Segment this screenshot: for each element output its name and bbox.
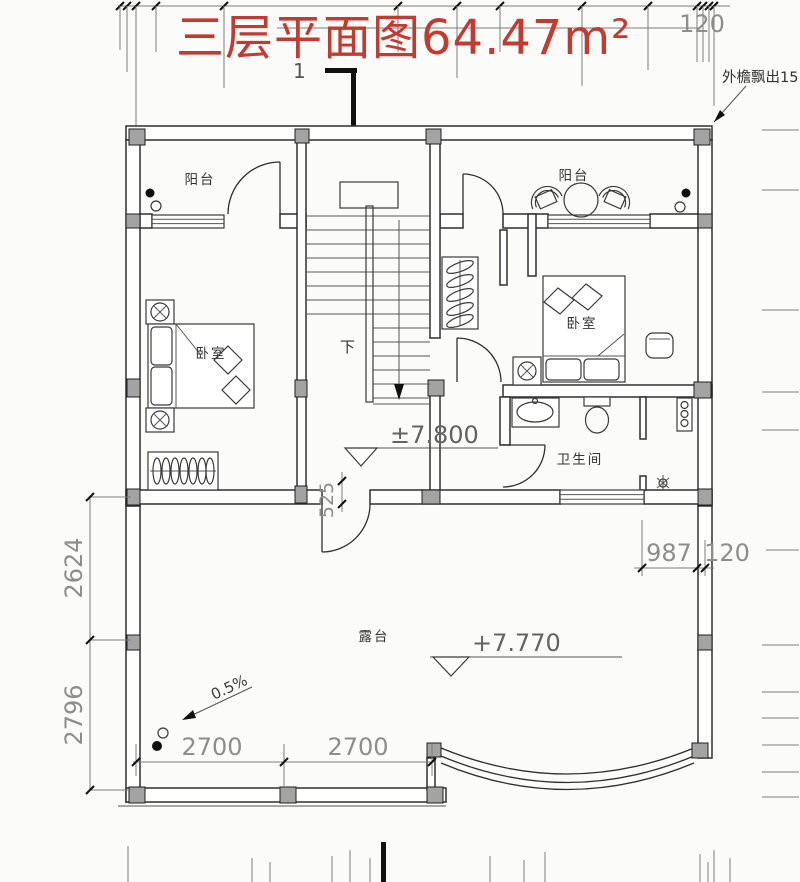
door-bathroom (503, 445, 545, 487)
utility-cabinet (677, 398, 692, 431)
drain-icon (146, 189, 155, 198)
level-triangle-icon (345, 448, 377, 466)
pillow (546, 359, 581, 380)
nightstand (146, 300, 174, 324)
dim-top-120: 120 (679, 10, 725, 38)
door-balcony-left (228, 162, 280, 214)
toilet (584, 397, 610, 433)
floor-plan-sheet: 三层平面图64.47m² 120 外檐飘出15 1 阳台 阳台 卧室 卧室 卫生… (0, 0, 800, 882)
level-triangle-icon (433, 657, 469, 676)
nightstand (513, 357, 541, 385)
door-balcony-right (463, 174, 503, 214)
bedroom-left-furniture (146, 300, 254, 490)
sheet-edge-ticks-bottom (128, 846, 730, 882)
sheet-edge-ticks-right (762, 130, 799, 797)
level-marker-terrace (430, 657, 622, 676)
section-mark-bottom (381, 842, 386, 882)
floor-drain-icon (657, 475, 669, 491)
stair-down-arrow-icon (394, 220, 404, 400)
room-label-bathroom: 卫生间 (557, 452, 604, 468)
dimension-left (86, 493, 131, 794)
dim-right-120: 120 (704, 539, 750, 567)
eave-note: 外檐飘出15 (722, 69, 798, 86)
section-number-top: 1 (293, 59, 306, 83)
slope-label: 0.5% (208, 671, 250, 703)
level-text-floor: ±7.800 (390, 421, 479, 449)
stair-treads (306, 216, 430, 404)
hall-closet (442, 257, 478, 330)
wardrobe-left (148, 452, 218, 490)
dim-bottom-2700-a: 2700 (181, 733, 242, 761)
drain-icon (682, 189, 691, 198)
window-bathroom (560, 490, 644, 504)
pillow (584, 359, 619, 380)
stair-landing-rail (340, 182, 398, 208)
room-label-terrace: 露台 (359, 629, 390, 645)
balcony-right-furniture (526, 181, 690, 217)
drawing-title: 三层平面图64.47m² (176, 10, 631, 66)
eave-note-leader (714, 86, 746, 122)
room-label-bedroom-right: 卧室 (567, 315, 598, 332)
room-label-bedroom-left: 卧室 (196, 345, 227, 362)
drain-icon (151, 201, 161, 211)
stool (646, 333, 673, 358)
level-text-terrace: +7.770 (472, 629, 561, 657)
section-mark-top (325, 68, 357, 126)
door-hall (457, 338, 501, 382)
floor-plan-drawing: 三层平面图64.47m² 120 外檐飘出15 1 阳台 阳台 卧室 卧室 卫生… (0, 0, 800, 882)
balcony-chair (598, 181, 635, 211)
staircase (306, 182, 430, 404)
window-balcony-right (548, 215, 650, 228)
level-marker-floor (345, 448, 498, 466)
stair-stringer (366, 206, 373, 402)
dimension-bottom (132, 744, 436, 786)
room-label-balcony-left: 阳台 (185, 172, 216, 188)
dimension-door-offset (338, 472, 346, 512)
dim-left-2796: 2796 (60, 684, 88, 745)
dim-door-525: 525 (316, 482, 338, 518)
drain-icon (152, 741, 162, 751)
dim-bottom-2700-b: 2700 (327, 733, 388, 761)
balcony-table (564, 183, 598, 217)
nightstand (146, 408, 174, 432)
stair-down-label: 下 (340, 338, 355, 356)
dim-right-987: 987 (646, 539, 692, 567)
balcony-chair (526, 181, 563, 211)
drain-icon (675, 202, 685, 212)
window-balcony-left (152, 215, 224, 228)
bathroom-fixtures (512, 397, 692, 491)
room-label-balcony-right: 阳台 (559, 168, 590, 184)
sink (512, 398, 559, 427)
balcony-left-drains (146, 189, 162, 212)
pillow (151, 367, 172, 405)
pillow (151, 327, 172, 365)
dim-left-2624: 2624 (60, 537, 88, 598)
arrow-head-icon (182, 710, 196, 720)
drain-icon (158, 728, 168, 738)
bed-left (148, 324, 254, 408)
